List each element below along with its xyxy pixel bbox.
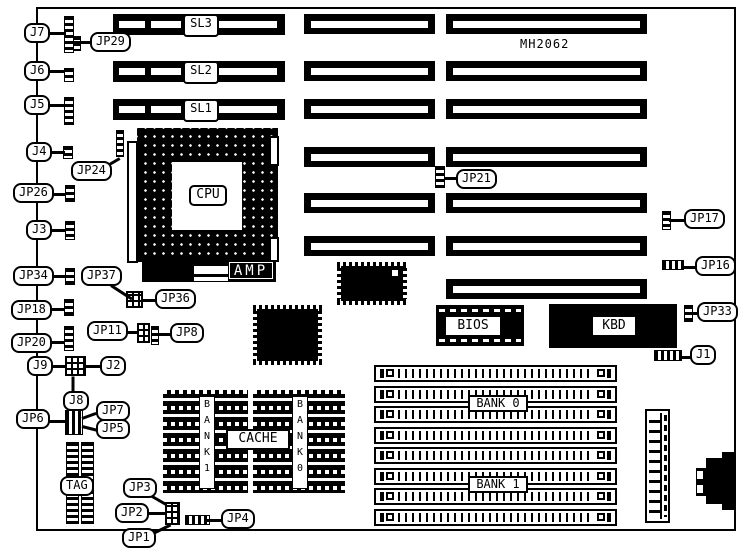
simm-barL — [380, 451, 384, 460]
slot-contact — [119, 68, 145, 75]
leader-line-j2 — [84, 365, 101, 368]
cache-bank-strip: B A N K 0 — [292, 396, 308, 489]
simm-barL — [380, 390, 384, 399]
simm-barR — [607, 390, 611, 399]
leader-line-jp17 — [669, 219, 685, 222]
slot-sl3: SL3 — [113, 14, 285, 35]
cache-label: CACHE — [226, 429, 290, 450]
simm-sqL — [386, 472, 394, 480]
simm-ticks — [398, 513, 593, 522]
simm-sqR — [597, 390, 605, 398]
jumper-j6 — [64, 68, 74, 82]
slot-contact — [219, 68, 277, 75]
callout-jp4: JP4 — [221, 509, 255, 529]
simm-barL — [380, 492, 384, 501]
callout-jp26: JP26 — [13, 183, 54, 203]
jumper-jp20 — [64, 326, 74, 351]
slot-contact — [453, 68, 640, 75]
simm-sqR — [597, 472, 605, 480]
jumper-j1 — [654, 350, 682, 361]
simm-sqR — [597, 431, 605, 439]
memory-bank-label: BANK 1 — [468, 476, 528, 493]
part-number: MH2062 — [520, 37, 569, 51]
simm-sqR — [597, 369, 605, 377]
slot-sl1: SL1 — [113, 99, 285, 120]
slot-contact — [453, 286, 640, 293]
simm-barR — [607, 492, 611, 501]
jumper-jp6 — [65, 410, 83, 435]
dip-pins-bottom — [439, 339, 521, 342]
callout-j5: J5 — [24, 95, 50, 115]
callout-jp29: JP29 — [90, 32, 131, 52]
kbd-label: KBD — [593, 317, 635, 335]
expansion-slot-right — [446, 279, 647, 299]
callout-jp18: JP18 — [11, 300, 52, 320]
callout-jp16: JP16 — [695, 256, 736, 276]
slot-sl2: SL2 — [113, 61, 285, 82]
callout-jp6: JP6 — [16, 409, 50, 429]
expansion-slot-mid — [304, 147, 435, 167]
memory-bank-label: BANK 0 — [468, 395, 528, 412]
simm-sqL — [386, 390, 394, 398]
amp-window-top — [194, 266, 228, 274]
simm-sqL — [386, 431, 394, 439]
power-connector — [645, 409, 670, 523]
callout-jp33: JP33 — [697, 302, 738, 322]
callout-j6: J6 — [24, 61, 50, 81]
expansion-slot-mid — [304, 14, 435, 34]
callout-j2: J2 — [100, 356, 126, 376]
simm-sqL — [386, 451, 394, 459]
callout-j3: J3 — [26, 220, 52, 240]
leader-line-jp6 — [47, 420, 66, 423]
expansion-slot-right — [446, 236, 647, 256]
simm-ticks — [398, 492, 593, 501]
bios-label: BIOS — [446, 317, 500, 335]
expansion-slot-mid — [304, 193, 435, 213]
simm-barL — [380, 431, 384, 440]
simm-ticks — [398, 431, 593, 440]
callout-j1: J1 — [690, 345, 716, 365]
simm-socket — [374, 509, 617, 526]
simm-barL — [380, 472, 384, 481]
simm-sqL — [386, 410, 394, 418]
callout-jp24: JP24 — [71, 161, 112, 181]
qfp-pins-right — [403, 268, 407, 299]
simm-sqR — [597, 410, 605, 418]
callout-jp34: JP34 — [13, 266, 54, 286]
power-pin-column — [649, 413, 662, 519]
slot-contact — [453, 106, 640, 113]
expansion-slot-right — [446, 14, 647, 34]
slot-contact — [151, 68, 181, 75]
simm-ticks — [398, 451, 593, 460]
slot-contact — [453, 200, 640, 207]
slot-contact — [119, 21, 145, 28]
power-pin-dashes — [664, 415, 667, 517]
keyboard-din-connector — [694, 452, 736, 510]
qfp-pins-right — [318, 311, 322, 359]
callout-jp21: JP21 — [456, 169, 497, 189]
cpu-label: CPU — [189, 185, 227, 206]
jumper-jp18 — [64, 299, 74, 316]
slot-contact — [453, 243, 640, 250]
jumper-j5 — [64, 97, 74, 125]
leader-line-jp8 — [157, 333, 171, 336]
simm-sqR — [597, 492, 605, 500]
jumper-jp16 — [662, 260, 684, 270]
simm-socket — [374, 427, 617, 444]
bios-chip: BIOS — [436, 305, 524, 346]
simm-barR — [607, 369, 611, 378]
expansion-slot-right — [446, 61, 647, 81]
callout-tag: TAG — [60, 476, 94, 496]
slot-contact — [151, 106, 181, 113]
callout-jp5: JP5 — [96, 419, 130, 439]
expansion-slot-mid — [304, 236, 435, 256]
din-pin — [697, 485, 703, 493]
zif-lever-left — [127, 141, 138, 263]
cache-bank-strip: B A N K 1 — [199, 396, 215, 489]
callout-jp11: JP11 — [87, 321, 128, 341]
leader-line-jp16 — [682, 266, 696, 269]
simm-ticks — [398, 369, 593, 378]
slot-label: SL3 — [183, 14, 219, 37]
expansion-slot-right — [446, 99, 647, 119]
slot-contact — [151, 21, 181, 28]
simm-barR — [607, 513, 611, 522]
callout-jp36: JP36 — [155, 289, 196, 309]
callout-jp7: JP7 — [96, 401, 130, 421]
expansion-slot-mid — [304, 61, 435, 81]
simm-barL — [380, 369, 384, 378]
callout-jp1: JP1 — [122, 528, 156, 548]
callout-jp20: JP20 — [11, 333, 52, 353]
callout-j4: J4 — [26, 142, 52, 162]
amp-label: AMP — [229, 262, 273, 279]
qfp-chip-upper — [337, 262, 407, 305]
callout-jp8: JP8 — [170, 323, 204, 343]
amp-window-bottom — [194, 277, 228, 281]
simm-barR — [607, 472, 611, 481]
callout-j8: J8 — [63, 391, 89, 411]
callout-jp2: JP2 — [115, 503, 149, 523]
simm-barR — [607, 451, 611, 460]
slot-contact — [311, 68, 428, 75]
pin1-marker — [392, 270, 398, 276]
qfp-chip-lower — [253, 305, 322, 365]
callout-jp3: JP3 — [123, 478, 157, 498]
keyboard-controller-chip: KBD — [549, 304, 677, 348]
simm-socket — [374, 365, 617, 382]
expansion-slot-mid — [304, 99, 435, 119]
expansion-slot-right — [446, 193, 647, 213]
slot-contact — [311, 154, 428, 161]
leader-line-j7 — [49, 32, 66, 35]
callout-jp37: JP37 — [81, 266, 122, 286]
expansion-slot-right — [446, 147, 647, 167]
simm-barL — [380, 410, 384, 419]
simm-sqR — [597, 513, 605, 521]
jumper-j9 — [65, 356, 86, 376]
slot-contact — [453, 154, 640, 161]
slot-contact — [311, 106, 428, 113]
qfp-body — [257, 309, 318, 361]
callout-j7: J7 — [24, 23, 50, 43]
slot-contact — [119, 106, 145, 113]
slot-contact — [219, 21, 277, 28]
din-body — [706, 458, 736, 504]
jumper-jp1-jp2-jp3 — [165, 502, 180, 525]
zif-bar-bottom-right — [269, 237, 279, 262]
simm-barR — [607, 410, 611, 419]
slot-label: SL2 — [183, 61, 219, 84]
simm-socket — [374, 447, 617, 464]
simm-sqL — [386, 492, 394, 500]
slot-contact — [453, 21, 640, 28]
motherboard-diagram: MH2062 CPU AMP BIOS KBD CA — [0, 0, 756, 556]
callout-jp17: JP17 — [684, 209, 725, 229]
dip-pins-top — [439, 309, 521, 312]
slot-contact — [311, 21, 428, 28]
din-pin — [697, 471, 703, 479]
simm-sqL — [386, 369, 394, 377]
slot-contact — [311, 200, 428, 207]
callout-j9: J9 — [27, 356, 53, 376]
simm-barL — [380, 513, 384, 522]
zif-bar-top-right — [269, 136, 279, 166]
jumper-jp26 — [65, 185, 75, 202]
simm-barR — [607, 431, 611, 440]
jumper-j3 — [65, 221, 75, 240]
slot-contact — [311, 243, 428, 250]
slot-contact — [219, 106, 277, 113]
jumper-jp34 — [65, 268, 75, 285]
simm-sqL — [386, 513, 394, 521]
slot-label: SL1 — [183, 99, 219, 122]
jumper-jp24 — [116, 130, 124, 157]
simm-sqR — [597, 451, 605, 459]
